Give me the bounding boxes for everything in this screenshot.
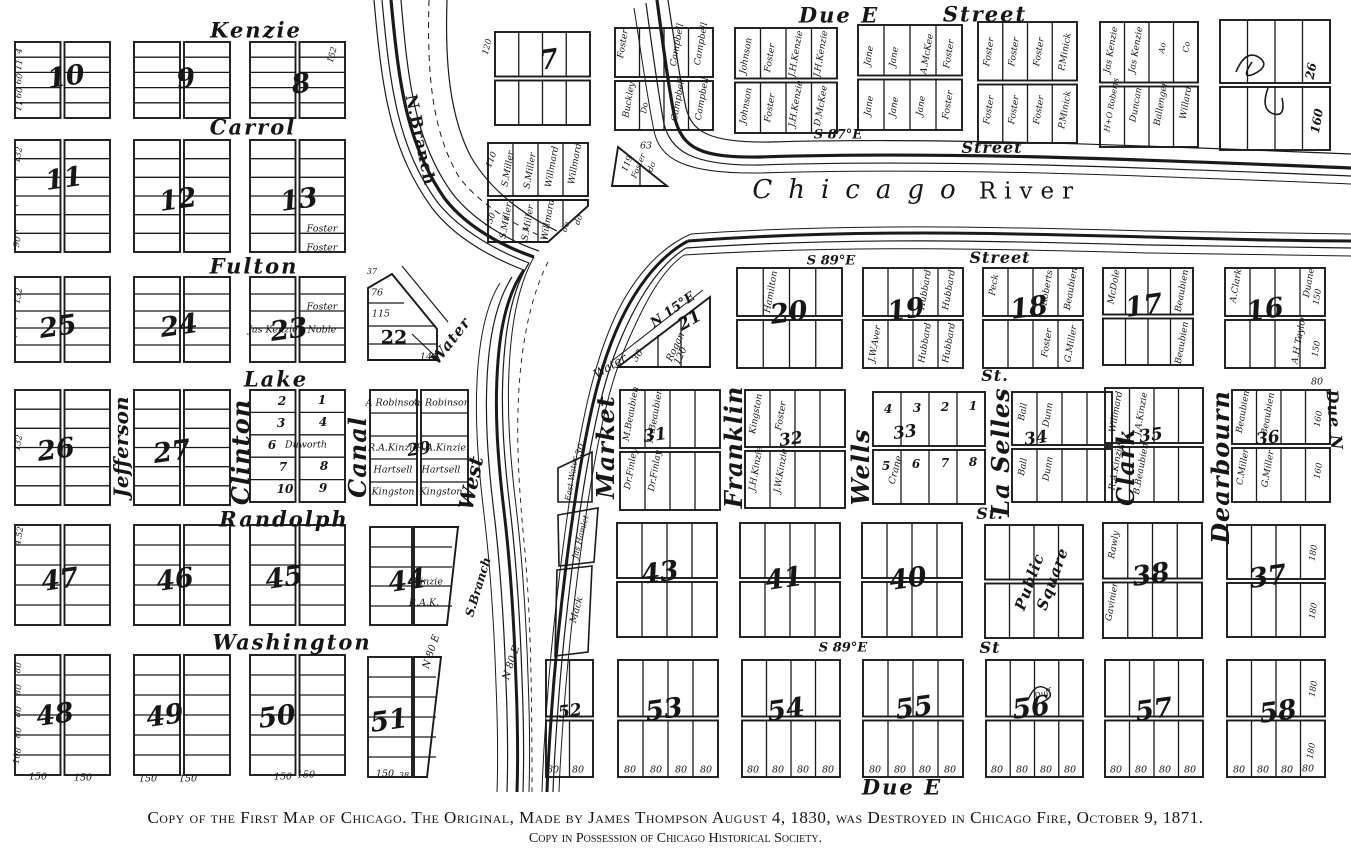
block-48: 48 xyxy=(35,699,76,731)
lot-hartsell-2: Hartsell xyxy=(422,465,461,475)
block-37: 37 xyxy=(1248,561,1289,593)
lot-6: 6 xyxy=(268,439,276,451)
dim-47-452: 4.52 xyxy=(14,526,26,546)
block-7: 7 xyxy=(538,45,560,74)
lot-g-miller-36: G.Miller xyxy=(1261,450,1276,488)
dim-56-80a: 80 xyxy=(991,765,1003,775)
lot-jane-2: Jane xyxy=(889,46,901,67)
lot-do-1: do xyxy=(561,221,572,233)
dim-57-80b: 80 xyxy=(1135,765,1147,775)
dim-48-108: 108 xyxy=(12,747,23,764)
lot-jh-kenzie-1: J.H.Kenzie xyxy=(788,30,805,78)
lot-willmard-3: Willmard xyxy=(541,199,557,242)
lot-ao: Ao xyxy=(1158,42,1168,54)
block-54: 54 xyxy=(766,694,807,726)
dim-58-180b: 180 xyxy=(1306,742,1317,759)
block-47: 47 xyxy=(40,564,81,596)
block-8: 8 xyxy=(290,69,312,98)
dim-58-180a: 180 xyxy=(1308,680,1319,697)
lot-ah-taylor: A.H.Taylor xyxy=(1291,315,1308,364)
dim-52-80b: 80 xyxy=(572,765,584,775)
street-label-north-bank: Street xyxy=(961,140,1022,156)
block-52: 52 xyxy=(557,702,583,722)
street-franklin: Franklin xyxy=(722,386,746,509)
block-27: 27 xyxy=(152,436,193,468)
lot-a-clark: A.Clark xyxy=(1230,268,1245,303)
lot-dunn-2: Dunn xyxy=(1042,456,1055,482)
dim-48-80a: 80 xyxy=(14,662,24,674)
block-57: 57 xyxy=(1134,694,1175,726)
lot-rawly: Rawly xyxy=(1108,530,1122,559)
lot-foster-13b: Foster xyxy=(307,243,338,253)
lot-ho-roberts: H+O Roberts xyxy=(1103,77,1120,132)
dim-55-80c: 80 xyxy=(919,765,931,775)
lot-foster-b6: Foster xyxy=(1033,95,1047,125)
dim-16-80: 80 xyxy=(1311,377,1323,387)
lot-8: 8 xyxy=(320,460,328,472)
lot-ra-kinzie-2: R.A.Kinzie xyxy=(416,443,466,453)
block-9: 9 xyxy=(175,64,197,93)
lot-s-miller-4: S.Miller xyxy=(521,204,536,241)
lot-mcdole: McDole xyxy=(1108,269,1123,305)
dim-11-132: 132 xyxy=(13,146,24,163)
lot-jane-1: Jane xyxy=(864,45,876,66)
street-due-e-top: Due E xyxy=(799,5,879,26)
dim-48-80b: 80 xyxy=(14,684,24,696)
dim-b7-120: 120 xyxy=(482,38,494,56)
lot-10: 10 xyxy=(277,483,294,495)
block-13: 13 xyxy=(279,184,320,216)
dim-58-80a: 80 xyxy=(1233,765,1245,775)
block-38: 38 xyxy=(1131,559,1172,591)
dim-10-4: 4 xyxy=(15,48,24,55)
lot-ballenger: Ballenger xyxy=(1154,81,1171,126)
dim-22-37: 37 xyxy=(367,268,377,276)
lot-willmard-35: Willmard xyxy=(1109,391,1125,434)
bearing-n80e-a: N 80 E xyxy=(422,634,442,671)
block-50: 50 xyxy=(257,701,298,733)
dim-49-150b: 150 xyxy=(179,774,197,784)
street-water-21: Water xyxy=(591,352,628,380)
street-east-water: East Water xyxy=(564,456,580,501)
lot-foster-13a: Foster xyxy=(307,224,338,234)
block-11: 11 xyxy=(44,163,85,195)
street-due-n: Due N xyxy=(1323,389,1344,451)
street-la-selles: La Selles xyxy=(989,387,1013,516)
block-49: 49 xyxy=(145,700,186,732)
block-55: 55 xyxy=(894,692,935,724)
lot-tri-do: do xyxy=(646,161,657,173)
lot-p-minick-1: P.Minick xyxy=(1058,32,1074,71)
lot-jh-kenzie-3: J.H.Kenzie xyxy=(788,80,805,128)
bearing-s89e-a: S 89°E xyxy=(807,255,855,268)
block-16: 16 xyxy=(1245,294,1286,326)
lot-4: 4 xyxy=(319,416,327,428)
block-51: 51 xyxy=(369,705,410,737)
dim-57-80c: 80 xyxy=(1159,765,1171,775)
street-jefferson: Jefferson xyxy=(111,396,131,497)
street-label-top: Street xyxy=(943,4,1027,25)
dim-b8-152: 152 xyxy=(327,46,339,64)
lot-foster-b5: Foster xyxy=(1008,95,1022,125)
block-34: 34 xyxy=(1023,429,1049,449)
dim-tr-26: 26 xyxy=(1304,62,1319,81)
lot-kingston-32: Kingston xyxy=(749,393,765,435)
lot-campbell-4: Campbell xyxy=(695,77,711,121)
dim-55-80d: 80 xyxy=(944,765,956,775)
lot-jas-kenzie-2: Jas Kenzie xyxy=(1128,26,1145,74)
lot-willard: Willard xyxy=(1180,86,1195,120)
lot-j-foster-4: Foster xyxy=(942,90,956,120)
dim-52-80a: 80 xyxy=(547,765,559,775)
dim-22-141: 141 xyxy=(420,352,438,362)
lot-hubbard-2: Hubbard xyxy=(942,269,958,311)
dim-37-180a: 180 xyxy=(1308,544,1319,561)
dim-10-60a: 60 xyxy=(15,73,25,85)
street-due-e-bottom: Due E xyxy=(862,777,942,798)
dim-37-180b: 180 xyxy=(1308,602,1319,619)
dim-50-150b: 150 xyxy=(297,770,315,780)
street-carrol: Carrol xyxy=(210,117,296,138)
dim-48-80d: 80 xyxy=(14,727,24,739)
lot-7: 7 xyxy=(279,461,287,473)
lot-foster-b1: Foster xyxy=(983,37,997,67)
street-canal: Canal xyxy=(346,416,370,498)
lot-jas-hamlet: Jas Hamlet xyxy=(571,514,590,559)
dim-10-11b: 11 xyxy=(15,100,25,112)
street-fulton: Fulton xyxy=(210,256,299,277)
dim-25-d1: ″ xyxy=(14,318,17,327)
lot-g-miller-18: G.Miller xyxy=(1064,325,1079,363)
lot-johnson-1: Johnson xyxy=(739,37,754,74)
lot-ball-1: Ball xyxy=(1018,402,1030,421)
lot-s-miller-2: S.Miller xyxy=(523,152,538,189)
dim-56-80c: 80 xyxy=(1040,765,1052,775)
block-53: 53 xyxy=(644,694,685,726)
street-label-south-bank: Street xyxy=(969,250,1030,266)
lot-hubbard-3: Hubbard xyxy=(918,322,934,364)
lot-rak-44: R.A.K. xyxy=(409,598,439,608)
lot-a-mckee: A.McKee xyxy=(920,33,936,75)
bearing-n80e-b: N 80 E xyxy=(502,645,522,682)
lot-gavinier: Gavinier xyxy=(1105,582,1121,622)
dim-10-11a: 11 xyxy=(15,59,25,71)
river-s-branch: S.Branch xyxy=(463,556,492,618)
lot-foster-b2: Foster xyxy=(1008,37,1022,67)
lot-buckley: Buckley xyxy=(622,81,637,118)
lot-beaubien-36a: Beaubien xyxy=(1236,390,1252,434)
lot-beaubien-18: Beaubien xyxy=(1064,267,1080,311)
lot-2: 2 xyxy=(278,395,286,407)
street-lake: Lake xyxy=(244,369,308,390)
dim-tr-160: 160 xyxy=(1309,108,1325,135)
map-caption: Copy of the First Map of Chicago. The Or… xyxy=(0,804,1351,847)
block-22: 22 xyxy=(381,329,407,348)
lot-c-do: Do xyxy=(640,102,650,114)
lot-foster-b4: Foster xyxy=(983,95,997,125)
lot-a-robinson-2: A. Robinson xyxy=(412,398,470,408)
lot-kinzie-44: Kinzie xyxy=(413,577,443,587)
lot-33-3: 3 xyxy=(913,402,921,414)
block-45: 45 xyxy=(264,562,305,594)
lot-33-1: 1 xyxy=(969,400,977,412)
lot-jane-4: Jane xyxy=(889,96,901,117)
street-washington: Washington xyxy=(212,632,371,653)
dim-51-150: 150 xyxy=(376,769,394,779)
dim-east-water-30: 30 xyxy=(574,443,587,458)
lot-johnson-2: Johnson xyxy=(739,87,754,124)
lot-s-miller-3: S.Miller xyxy=(499,202,514,239)
dim-53-80d: 80 xyxy=(700,765,712,775)
lot-jh-kinzie-32: J.H.Kinzie xyxy=(749,446,766,492)
dim-51-38: 38 xyxy=(399,772,409,780)
dim-48-150a: 150 xyxy=(29,772,47,782)
lot-jh-kenzie-2: J.H.Kenzie xyxy=(813,30,830,78)
dim-rogan-30: 30 xyxy=(631,348,646,363)
lot-kingston-2: Kingston xyxy=(420,487,463,497)
block-24: 24 xyxy=(159,310,200,342)
block-41: 41 xyxy=(764,563,805,595)
lot-do-2: do xyxy=(574,214,585,226)
dim-11-90: 90 xyxy=(13,236,23,248)
lot-3: 3 xyxy=(277,417,285,429)
dim-54-80a: 80 xyxy=(747,765,759,775)
lot-campbell-2: Campbell xyxy=(694,22,710,66)
street-label-st-1: St. xyxy=(981,368,1009,384)
street-market: Market xyxy=(594,395,618,499)
lot-foster-32: Foster xyxy=(775,401,789,431)
block-46: 46 xyxy=(155,564,196,596)
dim-54-80c: 80 xyxy=(797,765,809,775)
lot-p-minick-2: P.Minick xyxy=(1058,90,1074,129)
dim-26-132: 132 xyxy=(13,434,24,451)
street-west: West xyxy=(456,454,487,511)
dim-56-80b: 80 xyxy=(1016,765,1028,775)
lot-j-foster-1: Foster xyxy=(764,43,778,73)
lot-hubbard-1: Hubbard xyxy=(918,269,934,311)
dim-16-150b: 150 xyxy=(1311,340,1322,357)
lot-foster-b3: Foster xyxy=(1033,37,1047,67)
dim-53-80a: 80 xyxy=(624,765,636,775)
block-26: 26 xyxy=(36,434,77,466)
lot-33-2: 2 xyxy=(941,401,949,413)
lot-hartsell-1: Hartsell xyxy=(374,465,413,475)
block-43: 43 xyxy=(640,557,681,589)
lot-ball-2: Ball xyxy=(1018,457,1030,476)
lot-j-foster-3: Foster xyxy=(943,39,957,69)
lot-hubbard-4: Hubbard xyxy=(942,322,958,364)
lot-beaubien-17a: Beaubien xyxy=(1175,269,1191,313)
bearing-s87e: S 87°E xyxy=(814,129,862,142)
dim-miller-150: 150 xyxy=(484,212,498,230)
lot-co: Co xyxy=(1182,41,1192,53)
bearing-s89e-b: S 89°E xyxy=(819,642,867,655)
lot-d-mckee: D.McKee xyxy=(814,85,830,127)
lot-beaubien-17b: Beaubien xyxy=(1175,321,1191,365)
dim-57-80d: 80 xyxy=(1184,765,1196,775)
lot-jane-3: Jane xyxy=(864,95,876,116)
lot-m-beaubien-1: M.Beaubien xyxy=(623,386,641,442)
dim-22-115: 115 xyxy=(372,309,390,319)
street-kenzie: Kenzie xyxy=(210,20,302,41)
dim-11-d1: ″ xyxy=(15,179,18,188)
caption-line1: Copy of the First Map of Chicago. The Or… xyxy=(0,808,1351,828)
lot-jw-kinzie-32: J.W.Kinzie xyxy=(774,448,791,494)
block-40: 40 xyxy=(888,563,929,595)
lot-kingston-1: Kingston xyxy=(372,487,415,497)
lot-jas-kenzie-1: Jas Kenzie xyxy=(1103,26,1120,74)
block-17: 17 xyxy=(1124,290,1165,322)
dim-11-d2: ″ xyxy=(15,205,18,214)
lot-1: 1 xyxy=(318,394,326,406)
lot-dr-finley-2: Dr.Finlay xyxy=(648,450,664,493)
lot-dunn-1: Dunn xyxy=(1042,402,1055,428)
dim-22-76: 76 xyxy=(371,288,383,298)
block-33: 33 xyxy=(892,423,918,443)
dim-48-150b: 150 xyxy=(74,773,92,783)
dim-55-80a: 80 xyxy=(869,765,881,775)
dim-56-80d: 80 xyxy=(1064,765,1076,775)
dim-36-160b: 160 xyxy=(1313,462,1324,479)
lot-33-4: 4 xyxy=(884,403,892,415)
street-clinton: Clinton xyxy=(229,399,253,505)
lot-ra-kinzie-1: R.A.Kinzie xyxy=(368,443,418,453)
dim-16-150a: 150 xyxy=(1312,288,1323,305)
lot-9: 9 xyxy=(319,482,327,494)
river-n-branch: N.Branch xyxy=(403,93,438,187)
lot-foster-23: Foster xyxy=(307,302,338,312)
lot-duncan: Duncan xyxy=(1130,87,1145,123)
dim-54-80b: 80 xyxy=(772,765,784,775)
dim-25-132: 132 xyxy=(13,287,24,304)
dim-54-80d: 80 xyxy=(822,765,834,775)
lot-dr-finley-1: Dr.Finley xyxy=(624,448,640,491)
map-labels: KenzieCarrolFultonLakeRandolphWashington… xyxy=(0,0,1351,806)
street-label-st-3: St xyxy=(980,640,1001,656)
lot-33-8: 8 xyxy=(969,456,977,468)
lot-mack: Mack xyxy=(569,596,585,624)
dim-58-80b: 80 xyxy=(1257,765,1269,775)
dim-48-80c: 80 xyxy=(14,706,24,718)
dim-58-80d: 80 xyxy=(1302,764,1314,774)
lot-s-miller-1: S.Miller xyxy=(501,150,516,187)
lot-33-6: 6 xyxy=(912,458,920,470)
lot-noble: Noble xyxy=(308,325,337,335)
lot-33-7: 7 xyxy=(941,457,949,469)
lot-duworth: Duworth xyxy=(285,440,327,450)
dim-53-80b: 80 xyxy=(650,765,662,775)
street-wells: Wells xyxy=(849,428,873,505)
lot-jas-kenzie-23: Jas Kenzie xyxy=(248,325,298,335)
dim-50-150a: 150 xyxy=(274,772,292,782)
block-10: 10 xyxy=(46,61,87,93)
dim-10-60b: 60 xyxy=(15,87,25,99)
river-river: River xyxy=(979,181,1081,204)
street-dearbourn: Dearbourn xyxy=(1209,390,1233,544)
lot-willmard-2: Willmard xyxy=(568,143,584,186)
lot-peck: Peck xyxy=(989,274,1002,297)
dim-58-80c: 80 xyxy=(1281,765,1293,775)
dim-tri-63: 63 xyxy=(640,141,652,151)
dim-57-80a: 80 xyxy=(1110,765,1122,775)
dim-miller-110: 110 xyxy=(485,151,499,169)
block-58: 58 xyxy=(1258,696,1299,728)
lot-j-foster-2: Foster xyxy=(764,93,778,123)
dim-25-d2: ″ xyxy=(14,336,17,345)
dim-49-150a: 150 xyxy=(139,774,157,784)
lot-c-miller: C.Miller xyxy=(1236,448,1251,486)
lot-foster-18: Foster xyxy=(1041,328,1055,358)
block-25: 25 xyxy=(38,311,79,343)
lot-campbell-3: Campbell xyxy=(671,78,687,122)
lot-jw-aver: J.W.Aver xyxy=(868,325,883,363)
dim-36-160a: 160 xyxy=(1313,410,1324,427)
chicago-1830-map: KenzieCarrolFultonLakeRandolphWashington… xyxy=(0,0,1351,856)
lot-c-foster: Foster xyxy=(617,29,631,59)
dim-53-80c: 80 xyxy=(675,765,687,775)
lot-jane-5: Jane xyxy=(916,95,928,116)
block-12: 12 xyxy=(158,184,199,216)
street-randolph: Randolph xyxy=(219,509,348,530)
lot-willmard-1: Willmard xyxy=(545,146,561,189)
river-chicago: Chicago xyxy=(752,177,971,203)
dim-55-80b: 80 xyxy=(894,765,906,775)
caption-line2: Copy in Possession of Chicago Historical… xyxy=(0,831,1351,847)
lot-roberts: Roberts xyxy=(1040,270,1055,307)
lot-campbell-1: Campbell xyxy=(670,23,686,67)
